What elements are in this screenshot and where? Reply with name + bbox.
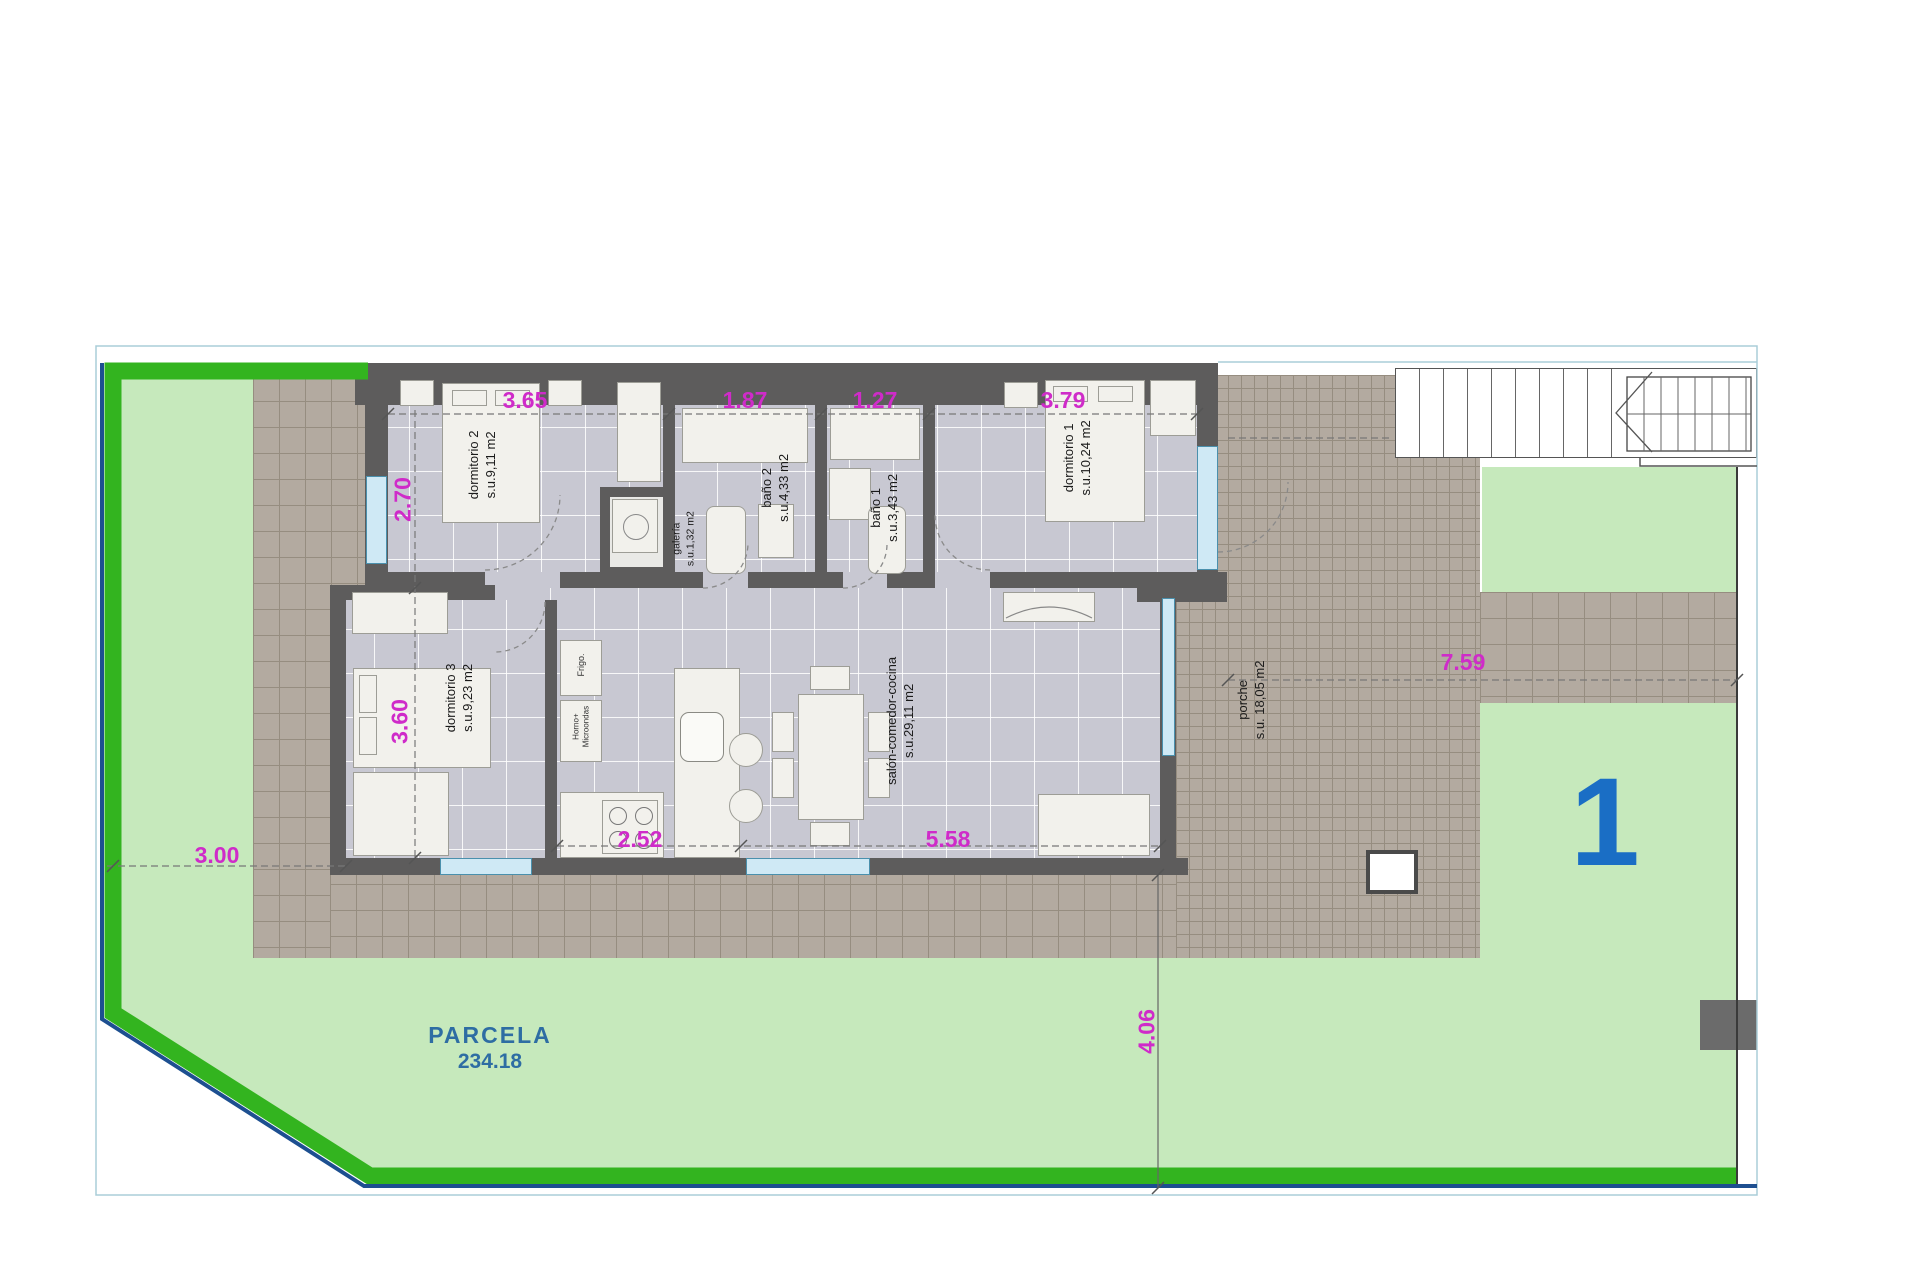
room-name: dormitorio 2 — [466, 385, 483, 545]
dim-kitchen-width: 2.52 — [600, 826, 680, 853]
linework-overlay — [0, 0, 1920, 1280]
sheet-frame — [96, 346, 1757, 1195]
room-label-galeria: galería s.u.1,32 m2 — [670, 479, 697, 599]
room-area: s.u.9,11 m2 — [483, 385, 500, 545]
room-name: galería — [670, 479, 684, 599]
room-name: porche — [1235, 620, 1252, 780]
plot-number: 1 — [1540, 760, 1670, 885]
room-name: baño 1 — [868, 428, 885, 588]
room-area: s.u.3,43 m2 — [885, 428, 902, 588]
dimension-lines — [107, 410, 1737, 866]
stairs-break-line — [1616, 372, 1652, 452]
dim-setback-left: 3.00 — [177, 842, 257, 869]
fridge-label: Frigo. — [576, 635, 586, 695]
room-name: baño 2 — [759, 408, 776, 568]
dim-dorm3-height: 3.60 — [387, 687, 414, 757]
room-area: s.u.10,24 m2 — [1078, 378, 1095, 538]
room-name: salón-comedor-cocina — [884, 641, 901, 801]
console-curve — [1006, 607, 1092, 618]
dim-bano1-width: 1.27 — [835, 387, 915, 414]
floor-plan-sheet: 3.65 1.87 1.27 3.79 2.70 3.60 2.52 5.58 … — [0, 0, 1920, 1280]
dimension-ticks — [107, 408, 1743, 1194]
room-label-dormitorio1: dormitorio 1 s.u.10,24 m2 — [1061, 378, 1095, 538]
room-label-dormitorio2: dormitorio 2 s.u.9,11 m2 — [466, 385, 500, 545]
room-label-porche: porche s.u. 18,05 m2 — [1235, 620, 1269, 780]
room-area: s.u.4,33 m2 — [776, 408, 793, 568]
room-area: s.u.29,11 m2 — [901, 641, 918, 801]
room-label-bano1: baño 1 s.u.3,43 m2 — [868, 428, 902, 588]
room-area: s.u.9,23 m2 — [460, 618, 477, 778]
parcela-area: 234.18 — [400, 1050, 580, 1074]
room-label-salon: salón-comedor-cocina s.u.29,11 m2 — [884, 641, 918, 801]
dim-setback-right: 7.59 — [1423, 649, 1503, 676]
stairs-upper-treads — [1627, 377, 1751, 451]
boundary-step-line — [1640, 458, 1757, 466]
dim-setback-bottom: 4.06 — [1134, 997, 1161, 1067]
dim-dorm2-height: 2.70 — [390, 465, 417, 535]
oven-label: Horno+ Microondas — [571, 692, 590, 762]
room-area: s.u. 18,05 m2 — [1252, 620, 1269, 780]
room-area: s.u.1,32 m2 — [684, 479, 698, 599]
plot-boundary-navy — [102, 363, 1757, 1186]
room-name: dormitorio 1 — [1061, 378, 1078, 538]
plot-boundary-green — [113, 371, 1737, 1176]
room-name: dormitorio 3 — [443, 618, 460, 778]
parcela-label: PARCELA — [400, 1022, 580, 1049]
dim-salon-width: 5.58 — [908, 826, 988, 853]
room-label-bano2: baño 2 s.u.4,33 m2 — [759, 408, 793, 568]
room-label-dormitorio3: dormitorio 3 s.u.9,23 m2 — [443, 618, 477, 778]
